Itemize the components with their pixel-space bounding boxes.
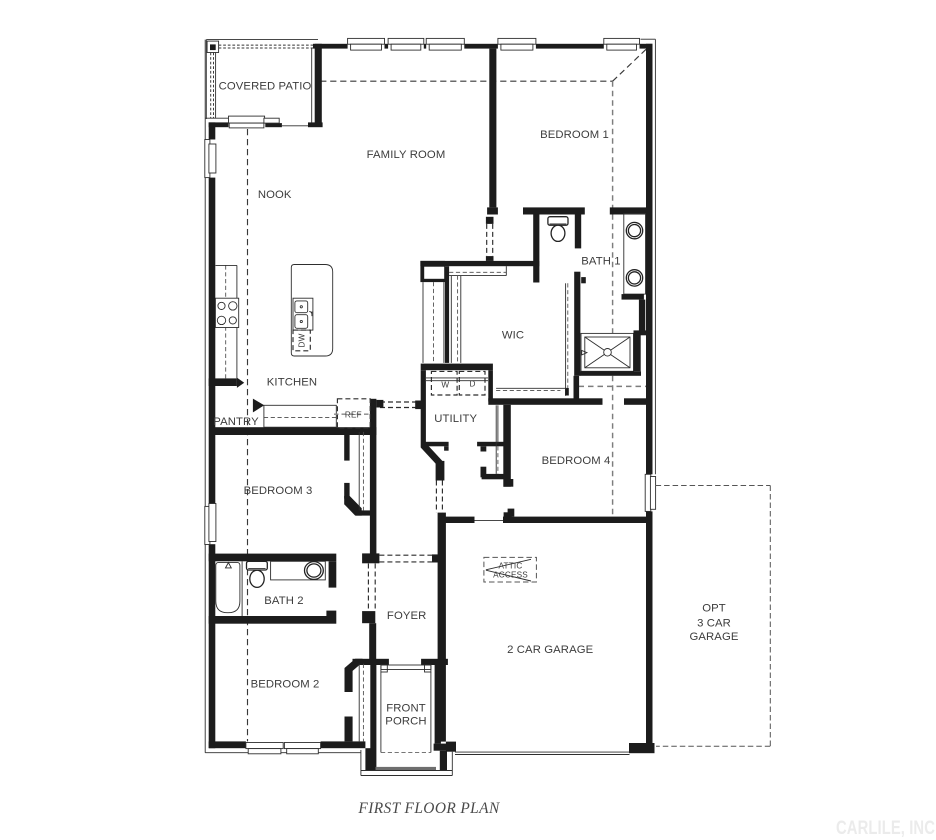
svg-text:BEDROOM 1: BEDROOM 1: [540, 129, 609, 141]
svg-text:ACCESS: ACCESS: [493, 571, 528, 580]
svg-text:PORCH: PORCH: [385, 715, 426, 727]
svg-text:KITCHEN: KITCHEN: [267, 377, 317, 389]
svg-text:ATTIC: ATTIC: [498, 561, 522, 570]
svg-text:OPT: OPT: [702, 603, 726, 615]
svg-text:3 CAR: 3 CAR: [697, 618, 731, 630]
svg-text:UTILITY: UTILITY: [434, 413, 477, 425]
svg-text:PANTRY: PANTRY: [213, 416, 259, 428]
svg-text:FOYER: FOYER: [387, 610, 427, 622]
svg-text:DW: DW: [298, 333, 307, 347]
svg-text:BATH 1: BATH 1: [581, 256, 620, 268]
svg-text:REF: REF: [345, 411, 362, 420]
svg-text:COVERED PATIO: COVERED PATIO: [219, 81, 312, 93]
svg-text:CARLILE, INC: CARLILE, INC: [836, 818, 935, 839]
svg-text:BATH 2: BATH 2: [264, 595, 303, 607]
svg-text:BEDROOM 4: BEDROOM 4: [542, 455, 611, 467]
svg-text:FAMILY ROOM: FAMILY ROOM: [367, 149, 446, 161]
svg-text:D: D: [469, 380, 475, 389]
svg-text:WIC: WIC: [502, 330, 524, 342]
svg-text:FRONT: FRONT: [386, 702, 426, 714]
svg-text:BEDROOM 3: BEDROOM 3: [244, 485, 313, 497]
svg-text:NOOK: NOOK: [258, 189, 292, 201]
svg-text:BEDROOM 2: BEDROOM 2: [251, 679, 320, 691]
svg-text:GARAGE: GARAGE: [689, 631, 738, 643]
svg-text:W: W: [441, 380, 449, 389]
svg-text:FIRST FLOOR PLAN: FIRST FLOOR PLAN: [357, 800, 500, 817]
svg-text:2 CAR GARAGE: 2 CAR GARAGE: [507, 644, 594, 656]
